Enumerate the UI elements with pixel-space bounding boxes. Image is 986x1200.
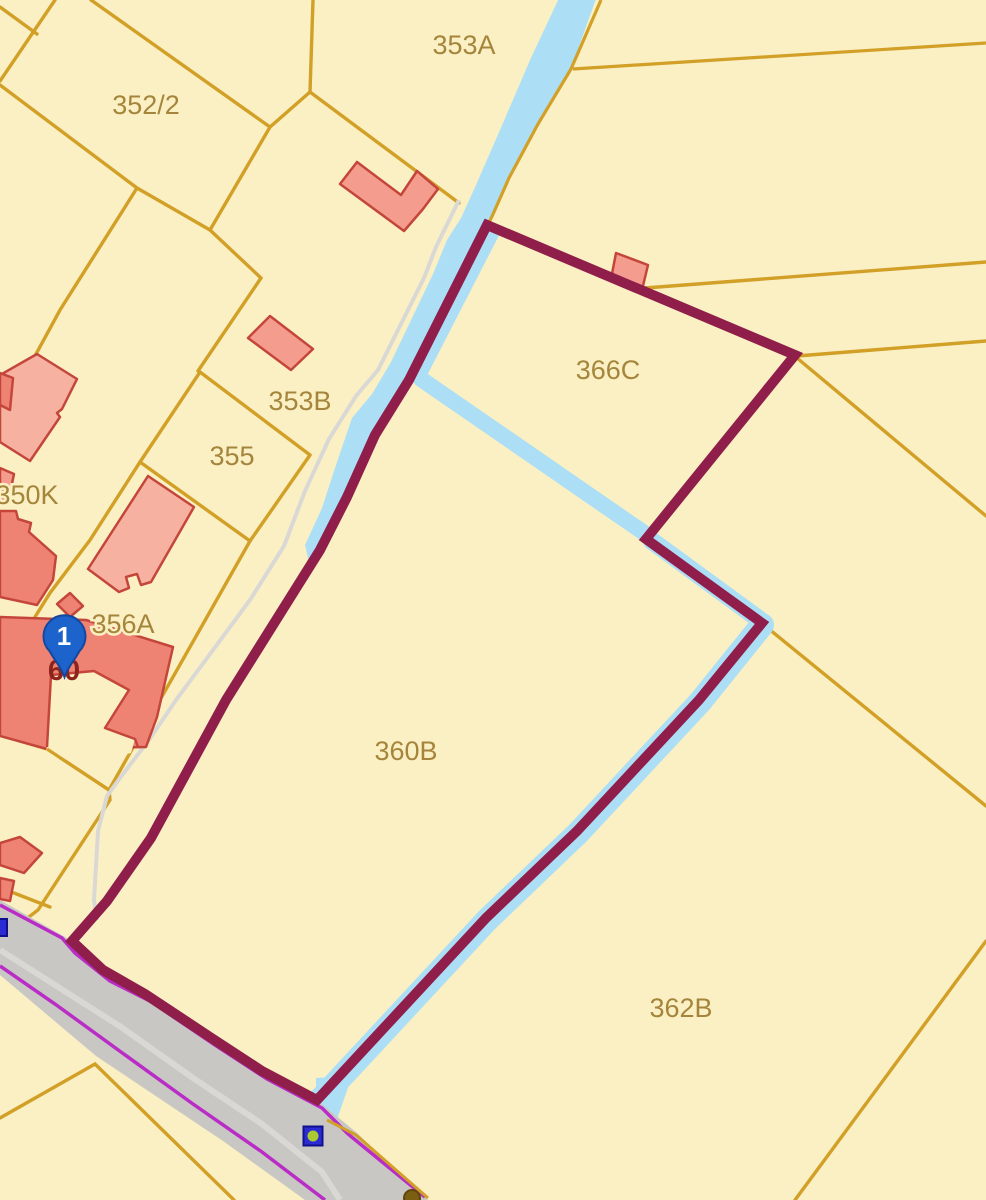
svg-text:352/2: 352/2 [112, 90, 180, 120]
svg-text:366C: 366C [576, 355, 641, 385]
svg-text:360B: 360B [374, 736, 437, 766]
svg-text:353A: 353A [432, 30, 495, 60]
svg-text:356A: 356A [91, 609, 154, 639]
svg-text:355: 355 [209, 441, 254, 471]
svg-text:350K: 350K [0, 480, 59, 510]
svg-text:353B: 353B [268, 386, 331, 416]
svg-text:1: 1 [57, 621, 71, 651]
svg-text:362B: 362B [649, 993, 712, 1023]
